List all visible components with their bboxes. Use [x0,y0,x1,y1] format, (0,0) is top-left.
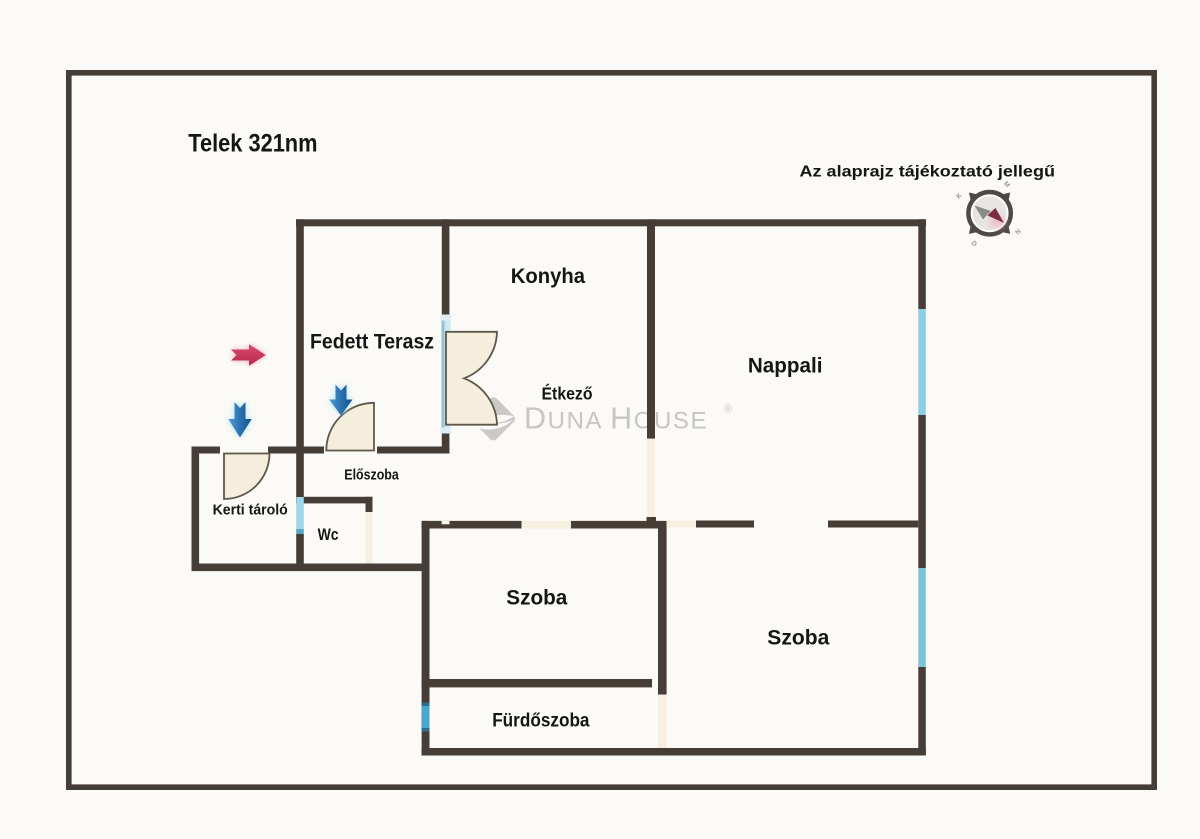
svg-text:Nappali: Nappali [748,355,823,378]
svg-text:®: ® [724,403,732,415]
svg-text:Kerti tároló: Kerti tároló [213,502,288,518]
svg-text:Étkező: Étkező [542,383,593,404]
svg-text:Wc: Wc [318,525,339,544]
svg-text:Előszoba: Előszoba [344,466,399,483]
svg-text:Fedett Terasz: Fedett Terasz [310,330,434,354]
svg-text:Telek 321nm: Telek 321nm [188,130,317,158]
svg-text:Konyha: Konyha [511,263,586,288]
svg-text:Szoba: Szoba [506,585,568,610]
svg-text:DUNA HOUSE: DUNA HOUSE [524,402,708,436]
svg-text:Szoba: Szoba [767,624,830,649]
svg-text:Fürdőszoba: Fürdőszoba [492,710,590,732]
svg-text:Az alaprajz tájékoztató jelleg: Az alaprajz tájékoztató jellegű [800,163,1056,180]
